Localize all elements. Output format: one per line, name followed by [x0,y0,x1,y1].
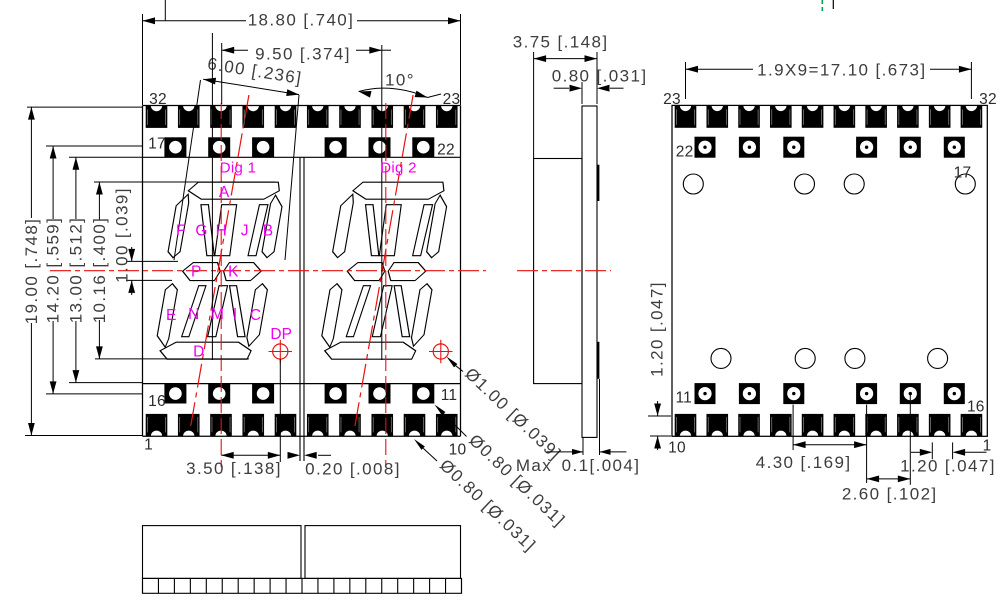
svg-text:11: 11 [675,390,692,407]
svg-text:10: 10 [449,442,467,459]
svg-text:1: 1 [144,437,153,454]
svg-text:9.50 [.374]: 9.50 [.374] [255,45,351,64]
svg-text:F: F [176,223,185,240]
svg-text:23: 23 [663,91,681,108]
svg-text:32: 32 [149,91,167,108]
svg-text:10.16 [.400]: 10.16 [.400] [90,217,109,324]
svg-text:A: A [219,184,230,201]
svg-text:22: 22 [676,144,694,161]
svg-text:0.20 [.008]: 0.20 [.008] [305,460,401,479]
svg-text:18.80 [.740]: 18.80 [.740] [248,11,355,30]
svg-text:1.20 [.047]: 1.20 [.047] [648,281,667,377]
svg-text:I: I [233,306,237,323]
svg-text:11: 11 [441,387,458,404]
svg-text:B: B [263,223,273,240]
svg-text:N: N [188,306,199,323]
svg-text:Dig 1: Dig 1 [220,160,257,177]
svg-text:10: 10 [668,440,686,457]
svg-text:E: E [166,307,176,324]
svg-text:J: J [241,223,249,240]
svg-text:1: 1 [983,438,992,455]
svg-text:0.80 [.031]: 0.80 [.031] [552,67,648,86]
svg-text:23: 23 [443,91,461,108]
svg-text:C: C [250,307,261,324]
svg-text:P: P [191,264,201,281]
svg-text:1.00 [.039]: 1.00 [.039] [113,187,132,283]
svg-text:D: D [193,344,204,361]
svg-text:19.00 [.748]: 19.00 [.748] [22,218,41,325]
svg-text:K: K [228,264,239,281]
svg-text:14.20 [.559]: 14.20 [.559] [44,217,63,324]
svg-text:22: 22 [437,142,455,159]
svg-text:17: 17 [954,165,972,182]
svg-text:2.60 [.102]: 2.60 [.102] [842,485,938,504]
svg-text:H: H [216,223,227,240]
svg-text:M: M [211,306,224,323]
svg-text:G: G [195,223,207,240]
svg-text:DP: DP [270,326,292,343]
svg-text:16: 16 [148,393,166,410]
svg-text:3.50 [.138]: 3.50 [.138] [186,459,282,478]
svg-text:Max: Max [516,456,552,475]
svg-text:17: 17 [148,136,166,153]
svg-text:16: 16 [967,399,985,416]
svg-text:32: 32 [979,91,997,108]
svg-text:1.9X9=17.10 [.673]: 1.9X9=17.10 [.673] [757,61,926,80]
svg-text:1.20 [.047]: 1.20 [.047] [900,457,996,476]
svg-text:4.30 [.169]: 4.30 [.169] [756,453,852,472]
svg-text:3.75 [.148]: 3.75 [.148] [513,33,609,52]
svg-text:13.00 [.512]: 13.00 [.512] [66,217,85,324]
svg-text:10°: 10° [385,71,415,90]
svg-text:0.1[.004]: 0.1[.004] [562,456,641,475]
svg-text:Dig 2: Dig 2 [380,160,417,177]
